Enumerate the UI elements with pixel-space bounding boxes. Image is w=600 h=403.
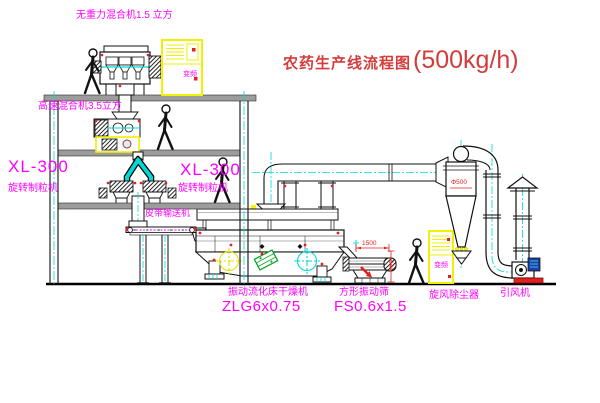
label-granulator-right-name: 旋转制粒机	[178, 184, 228, 194]
flow-diagram-canvas: 农药生产线流程图 (500kg/h) 无重力混合机1.5 立方 高速混合机3.5…	[0, 0, 600, 403]
granulator-left	[99, 181, 136, 203]
y-distribution-pipe	[127, 152, 151, 183]
label-cyclone: 旋风除尘器	[429, 291, 479, 301]
label-dryer-name: 振动流化床干燥机	[228, 288, 308, 298]
label-belt-conveyor: 皮带输送机	[145, 209, 190, 218]
label-gravity-free-mixer: 无重力混合机1.5 立方	[76, 11, 173, 21]
dim-cyclone-diameter: Φ500	[451, 180, 467, 187]
worker-figure-ground	[409, 239, 424, 283]
label-granulator-left-model: XL-300	[8, 158, 69, 175]
granulator-right	[140, 181, 176, 203]
label-granulator-right-model: XL-300	[180, 161, 241, 178]
induced-draft-fan	[512, 258, 543, 283]
cyclone-outlet-elbow	[454, 147, 469, 162]
label-granulator-left-name: 旋转制粒机	[8, 184, 58, 194]
rain-cap	[508, 177, 537, 188]
control-cabinet-right	[429, 231, 453, 283]
cabinet-right-text: 变频	[434, 262, 448, 269]
belt-conveyor	[126, 227, 197, 283]
label-screen-name: 方形振动筛	[339, 288, 389, 298]
diagram-title: 农药生产线流程图 (500kg/h)	[283, 46, 519, 75]
fan-motor	[528, 258, 540, 271]
label-dryer-model: ZLG6x0.75	[222, 299, 301, 314]
label-high-speed-mixer: 高速混合机3.5立方	[38, 102, 122, 112]
worker-figure-floor2	[158, 105, 173, 149]
title-capacity: (500kg/h)	[413, 46, 519, 75]
high-speed-mixer	[94, 112, 140, 152]
control-cabinet-top	[162, 40, 202, 95]
exhaust-stack	[508, 174, 537, 262]
title-chinese: 农药生产线流程图	[283, 52, 411, 73]
label-fan: 引风机	[500, 289, 530, 299]
dim-screen-length: 1500	[362, 241, 376, 248]
label-screen-model: FS0.6x1.5	[334, 299, 407, 314]
conveyor-legs	[137, 235, 171, 283]
cabinet-top-text: 变频	[183, 71, 197, 78]
floor2-slab	[58, 150, 240, 156]
dim-screen-height: 941	[387, 260, 394, 271]
mixer-drive-motor	[149, 56, 161, 78]
fan-base	[514, 278, 543, 283]
